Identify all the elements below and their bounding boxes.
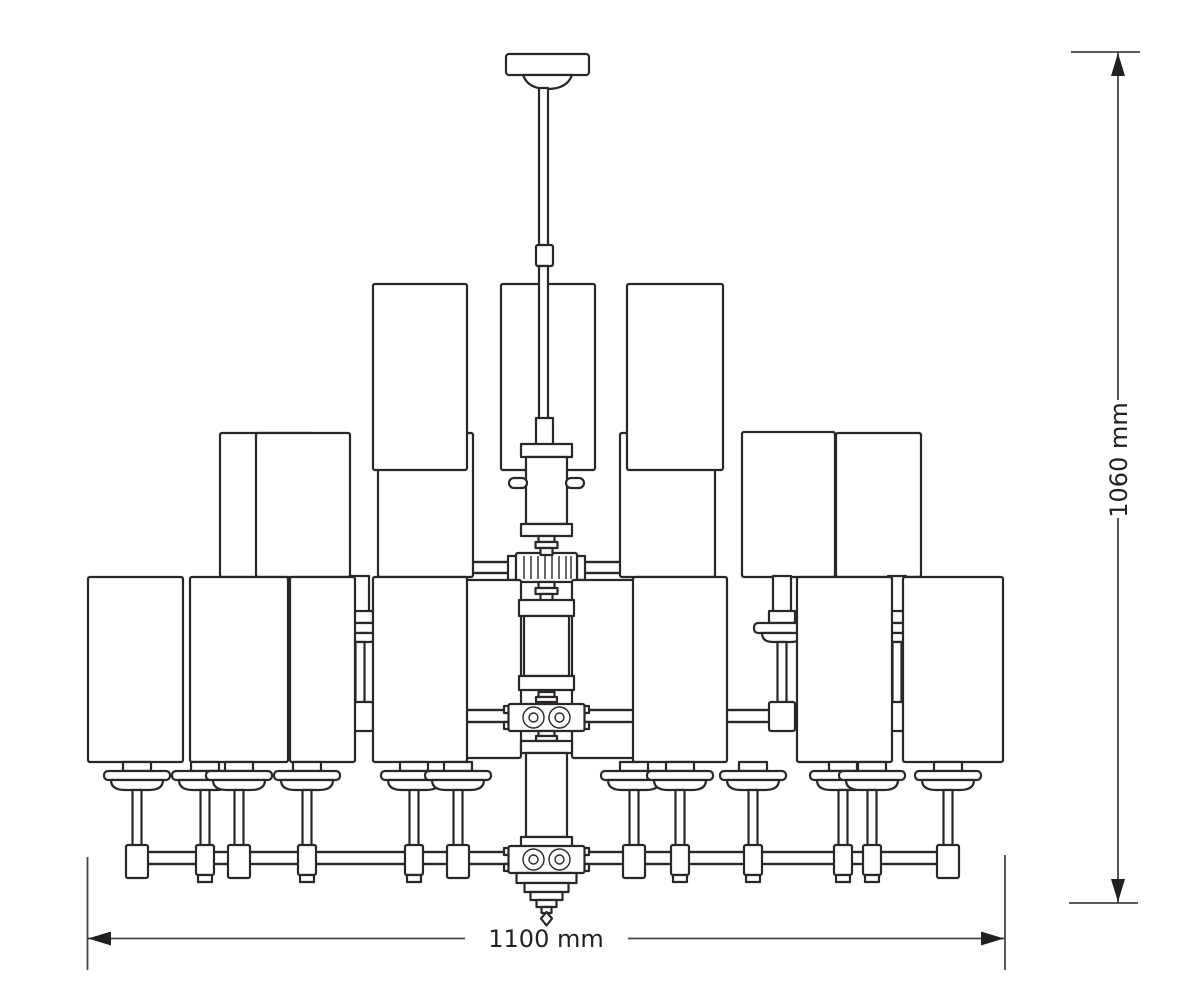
upper-hub (508, 553, 585, 582)
lampshade (903, 577, 1003, 762)
middle-socket (519, 582, 574, 702)
lampshade (742, 432, 835, 577)
rod-sleeve (536, 418, 553, 445)
middle-scroll-hub (504, 704, 589, 731)
rod-coupler (536, 245, 553, 266)
height-dimension: 1060 mm (1069, 52, 1140, 903)
arrow-left-icon (88, 932, 111, 946)
chandelier-drawing: 1100 mm 1060 mm (0, 0, 1200, 1000)
arrow-up-icon (1111, 53, 1125, 76)
width-dimension-label: 1100 mm (488, 925, 603, 953)
lampshade (256, 433, 350, 577)
technical-drawing-page: 1100 mm 1060 mm (0, 0, 1200, 1000)
lampshade (797, 577, 892, 762)
lampshade (836, 433, 921, 577)
finial (517, 873, 577, 926)
lampshade (290, 577, 355, 762)
lower-socket (521, 731, 572, 850)
lampshade (627, 284, 723, 470)
hanging-rod (539, 88, 548, 246)
lampshade (373, 284, 467, 470)
lampshade (373, 577, 467, 762)
bottom-scroll-hub (504, 846, 589, 873)
upper-socket-body (526, 457, 567, 524)
arrow-down-icon (1111, 879, 1125, 902)
hanging-rod (539, 266, 548, 419)
lampshade (190, 577, 288, 762)
ceiling-canopy (506, 54, 589, 75)
lampshade (88, 577, 183, 762)
height-dimension-label: 1060 mm (1105, 402, 1133, 517)
arrow-right-icon (981, 932, 1004, 946)
lampshade (633, 577, 727, 762)
